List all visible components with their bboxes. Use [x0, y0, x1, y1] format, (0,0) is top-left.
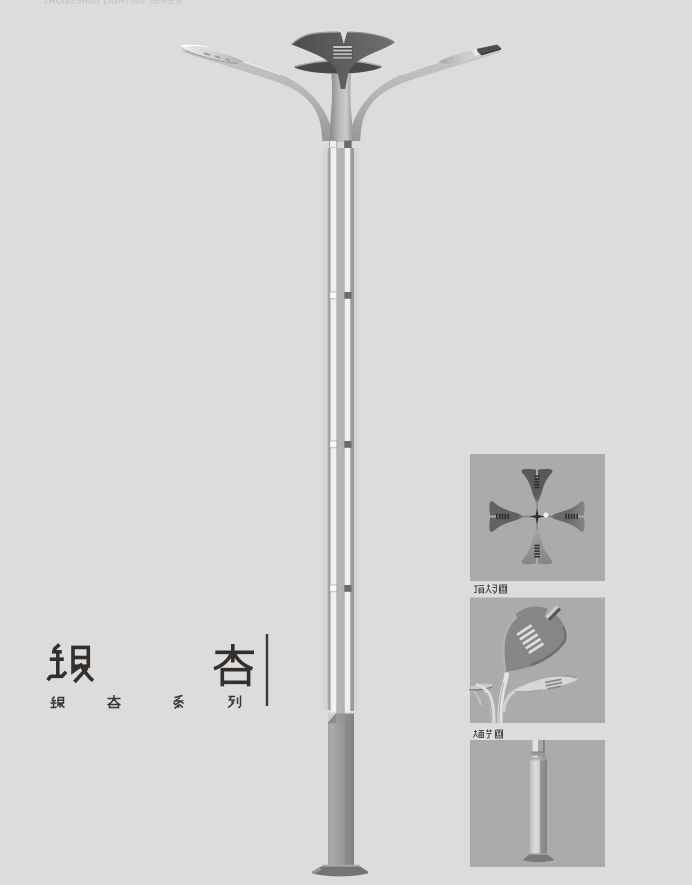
svg-text:ZHONGSHAN LIGHTING SERIES: ZHONGSHAN LIGHTING SERIES: [44, 0, 182, 6]
